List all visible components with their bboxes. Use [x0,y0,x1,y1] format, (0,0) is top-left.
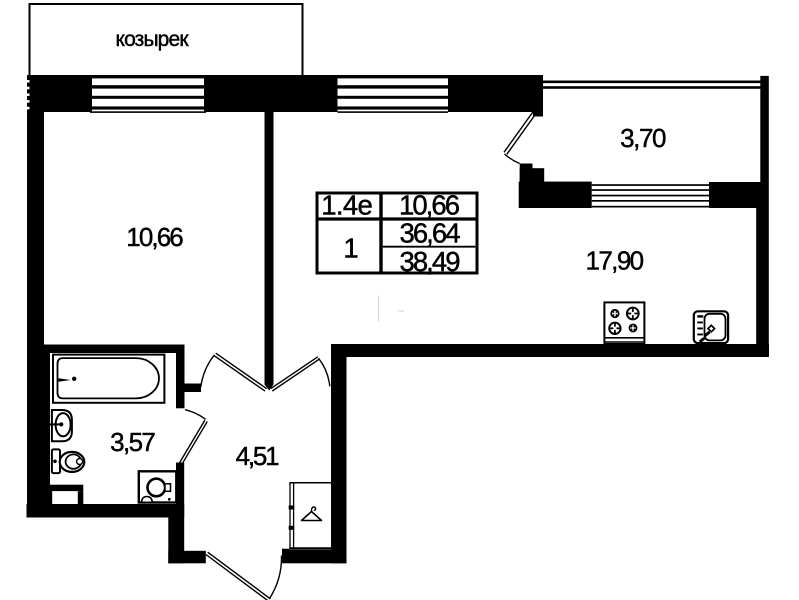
svg-text:3,70: 3,70 [620,123,666,153]
svg-text:10,66: 10,66 [399,190,460,221]
svg-text:36,64: 36,64 [400,218,461,249]
svg-text:38,49: 38,49 [400,246,461,277]
svg-text:10,66: 10,66 [126,222,184,252]
svg-text:1.4е: 1.4е [321,190,373,221]
svg-text:козырек: козырек [116,28,190,51]
svg-text:17,90: 17,90 [585,245,644,275]
svg-text:3,57: 3,57 [110,427,156,457]
svg-text:1: 1 [343,233,358,264]
svg-text:4,51: 4,51 [236,441,280,471]
